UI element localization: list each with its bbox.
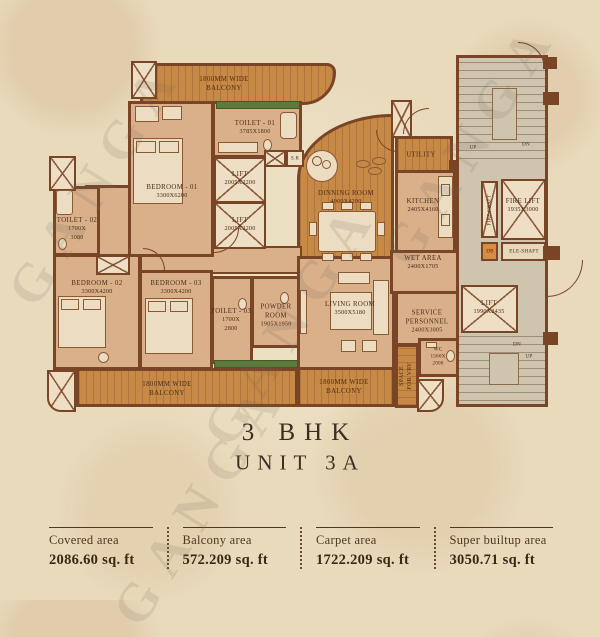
column: [417, 379, 444, 412]
plant-leaf-icon: [372, 157, 386, 165]
stat-label: Super builtup area: [450, 533, 554, 548]
label-lift-c: LIFT1990X2435: [473, 299, 504, 317]
label-bedroom-01: BEDROOM - 013300X6200: [146, 183, 197, 201]
column: [96, 255, 130, 275]
kitchen-stove: [441, 214, 450, 226]
label-kitchen: KITCHEN2405X4160: [407, 197, 440, 215]
chair: [341, 253, 353, 261]
label-wet-area: WET AREA2400X1705: [404, 254, 442, 272]
chair: [322, 253, 334, 261]
stat-super-builtup-area: Super builtup area 3050.71 sq. ft: [434, 527, 568, 569]
wall-column: [543, 57, 557, 69]
sofa: [338, 272, 370, 284]
label-stairs-top-up: UP: [469, 144, 476, 151]
pillow: [61, 299, 79, 310]
label-balcony-bottom-right: 1800MM WIDEBALCONY: [319, 378, 368, 396]
planter-top: [216, 101, 300, 109]
wall-column: [449, 160, 459, 172]
plant-leaf-icon: [322, 160, 331, 169]
wall-column: [543, 246, 560, 260]
stat-label: Balcony area: [183, 533, 287, 548]
wc-fixture: [446, 350, 455, 362]
duct-shaft: [264, 150, 286, 167]
label-toilet-01: TOILET - 013785X1800: [235, 119, 275, 137]
label-lift-a: LIFT2005X2200: [224, 170, 255, 188]
pillow: [83, 299, 101, 310]
column: [131, 61, 157, 99]
door-arc-core-top: [518, 42, 545, 69]
label-bedroom-03: BEDROOM - 033300X4200: [150, 279, 201, 297]
column: [49, 156, 76, 191]
planter-bottom: [214, 360, 298, 368]
pillow: [170, 301, 188, 312]
chair: [377, 222, 385, 236]
label-fire-lift: FIRE LIFT1935X3000: [506, 197, 540, 215]
pillow: [136, 141, 156, 153]
plant-leaf-icon: [356, 160, 370, 168]
column: [47, 370, 76, 412]
area-stats: Covered area 2086.60 sq. ft Balcony area…: [35, 527, 567, 569]
label-stairs-bottom-dn: DN: [513, 341, 521, 348]
label-bedroom-02: BEDROOM - 023300X4200: [71, 279, 122, 297]
label-sr: S.R: [291, 155, 299, 162]
dining-table: [318, 211, 376, 252]
stat-label: Carpet area: [316, 533, 420, 548]
stat-carpet-area: Carpet area 1722.209 sq. ft: [300, 527, 434, 569]
armchair: [362, 340, 377, 352]
shower: [56, 190, 73, 215]
label-stairs-bottom-up: UP: [525, 353, 532, 360]
chair: [309, 222, 317, 236]
side-table: [98, 352, 109, 363]
label-toilet-03: TOILET - 031700X2800: [211, 307, 251, 333]
label-balcony-top: 1800MM WIDEBALCONY: [199, 75, 248, 93]
plant-leaf-icon: [312, 156, 322, 166]
label-wc: WC1560X2000: [430, 346, 445, 367]
chair: [360, 253, 372, 261]
door-arc-core-lobby: [547, 260, 583, 297]
armchair: [162, 106, 182, 120]
plant-leaf-icon: [368, 167, 382, 175]
vanity-counter: [218, 142, 258, 153]
wall-column: [543, 92, 559, 105]
label-balcony-bottom-left: 1800MM WIDEBALCONY: [142, 380, 191, 398]
unit-subtitle: UNIT 3A: [235, 451, 365, 476]
floor-plan: 1800MM WIDEBALCONY TOILET - 013785X1800 …: [0, 0, 600, 600]
wc-fixture: [263, 139, 272, 151]
label-lift-b: LIFT2005X2200: [224, 216, 255, 234]
tv-unit: [300, 290, 307, 334]
wall-column: [543, 332, 558, 345]
stat-value: 2086.60 sq. ft: [49, 552, 153, 569]
kitchen-sink: [441, 184, 450, 196]
shower: [280, 112, 297, 139]
label-fire-shaft: FIRE SHAFT: [487, 195, 494, 226]
sofa: [373, 280, 389, 335]
label-db: DB: [486, 248, 494, 255]
stat-label: Covered area: [49, 533, 153, 548]
stair-landing-top: [492, 88, 517, 140]
label-utility: UTILITY: [406, 150, 436, 159]
stat-value: 1722.209 sq. ft: [316, 552, 420, 569]
label-living-room: LIVING ROOM3500X5180: [325, 300, 375, 318]
stat-covered-area: Covered area 2086.60 sq. ft: [35, 527, 167, 569]
plan-title: 3 BHK: [242, 419, 359, 447]
label-toilet-02: TOILET - 021700X3080: [57, 216, 97, 242]
label-stairs-top-dn: DN: [522, 141, 530, 148]
stair-landing-bottom: [489, 353, 519, 385]
floorplan-page: { "watermark": "GANGA", "title": { "line…: [0, 0, 600, 600]
pillow: [159, 141, 179, 153]
label-dining-room: DINNING ROOM4000X4200: [318, 189, 374, 207]
label-service-personnel: SERVICEPERSONNEL2400X3005: [406, 309, 449, 336]
label-powder-room: POWDERROOM1905X1950: [260, 303, 291, 330]
stat-balcony-area: Balcony area 572.209 sq. ft: [167, 527, 301, 569]
armchair: [135, 106, 159, 122]
armchair: [341, 340, 356, 352]
label-ele-shaft: ELE-SHAFT: [509, 248, 538, 255]
stat-value: 572.209 sq. ft: [183, 552, 287, 569]
stat-value: 3050.71 sq. ft: [450, 552, 554, 569]
label-space-for-vrv: SPACEFOR VRV: [399, 362, 415, 389]
pillow: [148, 301, 166, 312]
